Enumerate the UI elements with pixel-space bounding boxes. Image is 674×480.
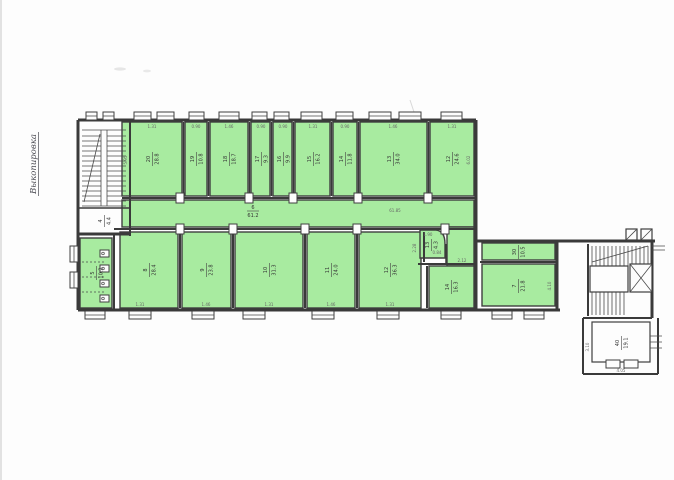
svg-text:1.31: 1.31: [309, 124, 318, 129]
svg-text:9.3: 9.3: [264, 155, 270, 163]
svg-text:10.5: 10.5: [521, 246, 527, 257]
room-label: 14: [445, 284, 451, 290]
annex-room: [592, 322, 650, 362]
toilet-icon: [100, 295, 109, 302]
svg-text:16.2: 16.2: [316, 153, 322, 164]
svg-text:9.9: 9.9: [286, 155, 292, 163]
room-label-right-top: 30: [512, 249, 518, 255]
window: [189, 112, 204, 120]
room-label: 13: [387, 156, 393, 162]
entry-canopy: [652, 246, 665, 250]
svg-text:28.4: 28.4: [152, 264, 158, 275]
rooms-top-row: [122, 122, 474, 196]
window: [103, 112, 114, 120]
room-bottom-3: [235, 232, 303, 308]
window: [252, 112, 267, 120]
top-wall-windows: [86, 112, 462, 120]
handwritten-note: Выкопировка: [29, 132, 39, 196]
room-label-understair: 4: [98, 219, 104, 222]
room-label: 19: [190, 156, 196, 162]
svg-text:0.90: 0.90: [192, 124, 201, 129]
svg-text:36.3: 36.3: [393, 264, 399, 275]
window: [70, 272, 78, 288]
svg-text:11.8: 11.8: [348, 153, 354, 164]
svg-text:21.8: 21.8: [521, 280, 527, 291]
window: [134, 112, 151, 120]
svg-text:0.90: 0.90: [341, 124, 350, 129]
scan-smudges: [114, 67, 414, 112]
window: [86, 112, 97, 120]
svg-text:1.46: 1.46: [202, 302, 211, 307]
window: [441, 112, 462, 120]
room-top-3: [210, 122, 248, 196]
svg-text:6: 6: [251, 205, 254, 211]
svg-text:1.31: 1.31: [148, 124, 157, 129]
svg-text:4.3: 4.3: [434, 241, 440, 249]
svg-text:23.8: 23.8: [209, 264, 215, 275]
svg-text:4.4: 4.4: [107, 217, 113, 225]
room-label: 10: [263, 267, 269, 273]
svg-text:18.7: 18.7: [232, 153, 238, 164]
handwritten-note-text: Выкопировка: [29, 134, 39, 195]
room-label: 18: [223, 156, 229, 162]
room-label: 11: [325, 267, 331, 273]
window: [441, 311, 461, 319]
window: [606, 360, 620, 368]
room-label: 16: [277, 156, 283, 162]
scan-edge-artifact: [0, 0, 2, 480]
room-label-wc: 5: [90, 271, 96, 274]
room-label: 12: [446, 156, 452, 162]
dim-diag-a: 1.90: [424, 232, 433, 237]
room-label: 17: [255, 156, 261, 162]
dim-annex-w: 4.05: [617, 368, 626, 373]
window: [85, 311, 105, 319]
room-bottom-4: [307, 232, 355, 308]
svg-text:1.46: 1.46: [327, 302, 336, 307]
window: [369, 112, 391, 120]
dim-right-height: 6.02: [466, 155, 471, 164]
vent-shaft-icon: [626, 229, 637, 240]
dim-diag-b: 0.84: [433, 250, 442, 255]
room-bottom-5: [359, 232, 421, 308]
window: [70, 246, 78, 262]
window: [243, 311, 265, 319]
window: [219, 112, 239, 120]
svg-text:1.46: 1.46: [389, 124, 398, 129]
svg-text:10.8: 10.8: [199, 153, 205, 164]
room-label-diag: 13: [425, 242, 431, 248]
dim-annex-h: 3.10: [585, 342, 590, 351]
svg-text:24.0: 24.0: [334, 264, 340, 275]
window: [157, 112, 174, 120]
right-annex: [583, 229, 665, 374]
room-label: 15: [307, 156, 313, 162]
window: [192, 311, 214, 319]
elevator: [630, 264, 652, 292]
toilet-icon: [100, 250, 109, 257]
svg-text:1.31: 1.31: [448, 124, 457, 129]
room-label: 14: [339, 156, 345, 162]
svg-text:1.31: 1.31: [136, 302, 145, 307]
dim-right-rooms: 4.10: [547, 281, 552, 290]
window: [336, 112, 353, 120]
svg-text:19.1: 19.1: [624, 337, 630, 348]
annex-side-window: [650, 336, 662, 348]
window: [399, 112, 421, 120]
svg-text:31.3: 31.3: [272, 264, 278, 275]
room-label-right-bottom: 7: [512, 284, 518, 287]
room-label: 8: [143, 268, 149, 271]
window: [377, 311, 399, 319]
svg-text:1.31: 1.31: [386, 302, 395, 307]
svg-text:1.46: 1.46: [225, 124, 234, 129]
window: [524, 311, 544, 319]
svg-text:61.2: 61.2: [247, 213, 258, 219]
window: [301, 112, 322, 120]
stair-landing: [590, 266, 628, 292]
vent-shaft-icon: [641, 229, 652, 240]
svg-text:0.90: 0.90: [279, 124, 288, 129]
svg-text:16.3: 16.3: [454, 281, 460, 292]
svg-text:24.6: 24.6: [455, 153, 461, 164]
svg-text:28.8: 28.8: [155, 153, 161, 164]
right-stair-treads-bottom: [592, 292, 624, 315]
corridor: [122, 200, 474, 227]
svg-text:10.2: 10.2: [99, 267, 105, 278]
dim-corridor-length: 61.85: [389, 208, 401, 213]
window: [129, 311, 151, 319]
room-bottom-1: [120, 232, 178, 308]
window: [274, 112, 289, 120]
dim-diag-c: 2.28: [412, 243, 417, 252]
room-label: 12: [384, 267, 390, 273]
svg-text:1.31: 1.31: [265, 302, 274, 307]
window: [624, 360, 638, 368]
room-label: 9: [200, 268, 206, 271]
right-stair-treads-top: [592, 246, 648, 266]
scanned-floor-plan-page: Выкопировка: [0, 0, 674, 480]
svg-text:0.90: 0.90: [257, 124, 266, 129]
window: [492, 311, 512, 319]
bottom-wall-windows: [85, 311, 544, 319]
left-staircase: [82, 130, 126, 206]
dim-left-height: 5.95: [123, 155, 128, 164]
room-label: 20: [146, 156, 152, 162]
dim-passage: 2.12: [458, 258, 467, 263]
window: [312, 311, 334, 319]
svg-text:34.0: 34.0: [396, 153, 402, 164]
room-label-annex: 40: [615, 340, 621, 346]
toilet-icon: [100, 280, 109, 287]
floor-plan-svg: Выкопировка: [0, 0, 674, 480]
